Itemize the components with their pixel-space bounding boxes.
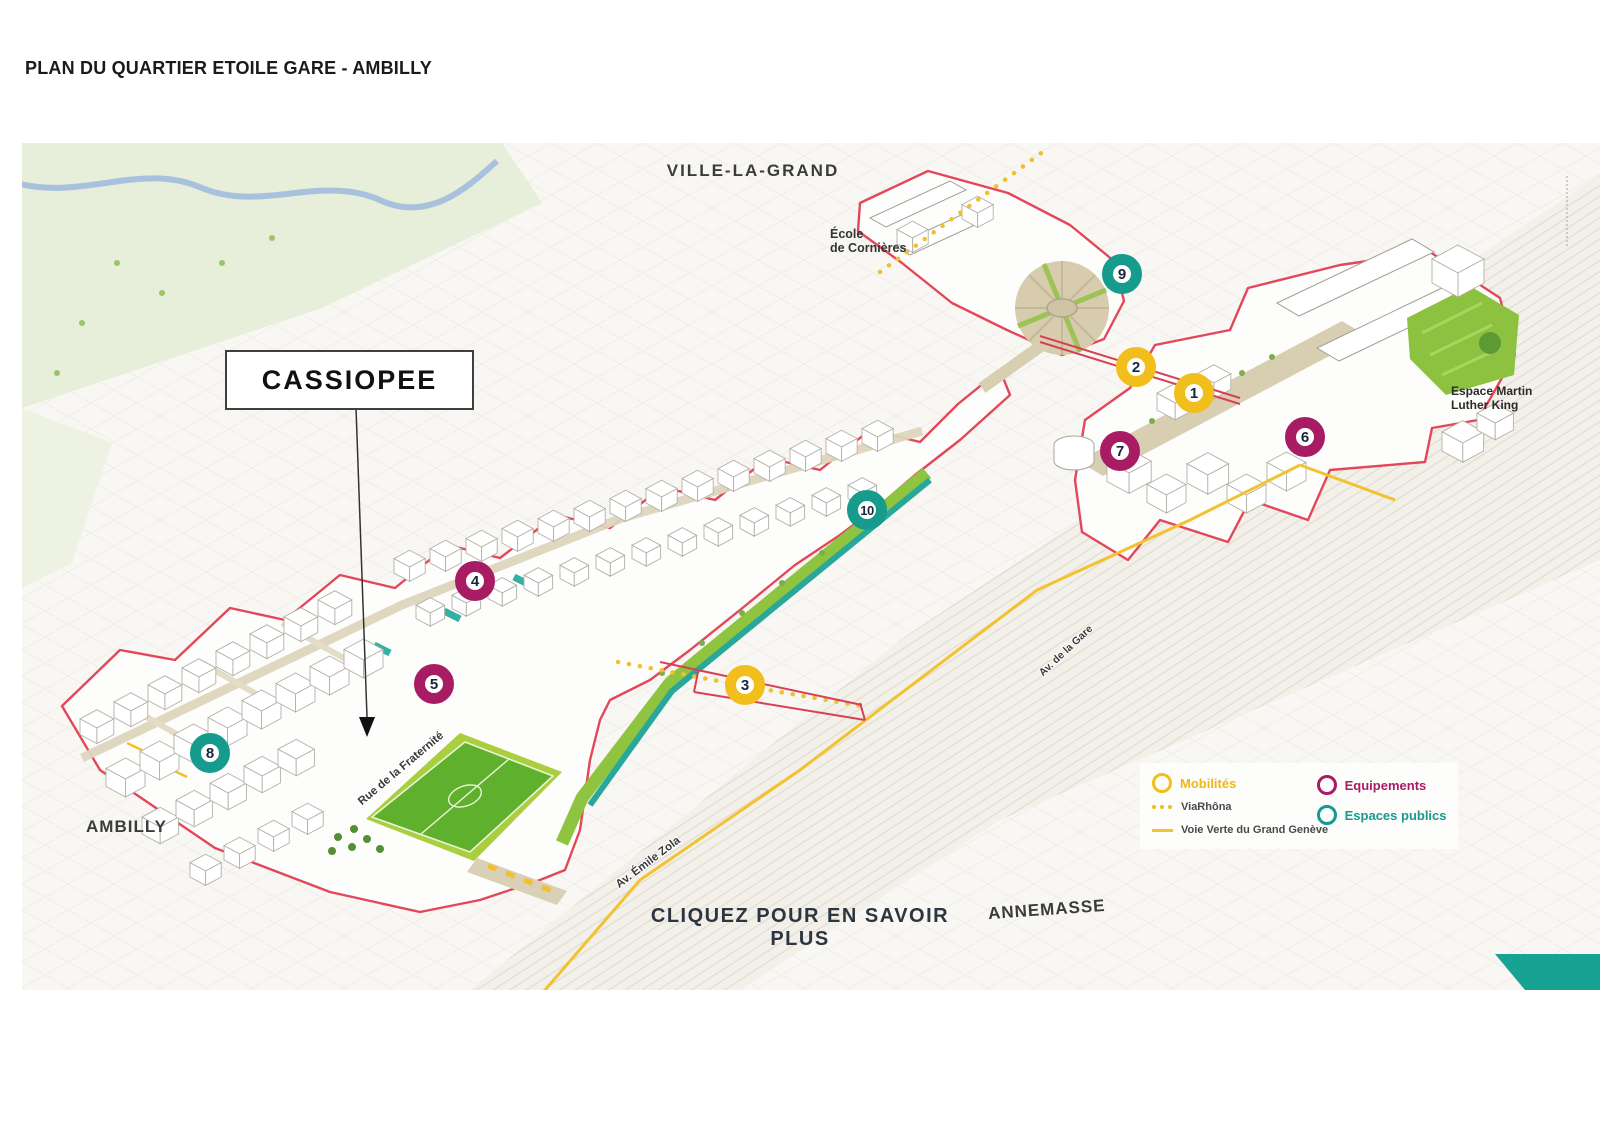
marker-5-equipements[interactable]: 5 <box>414 664 454 704</box>
viarhona-dotted-line-icon <box>1152 805 1173 809</box>
legend-label-equipements: Equipements <box>1345 778 1427 793</box>
legend-item-viarhona: ViaRhôna <box>1152 798 1317 816</box>
legend-item-mobilites: Mobilités <box>1152 773 1317 793</box>
legend-label-mobilites: Mobilités <box>1180 776 1236 791</box>
legend: Mobilités ViaRhôna Voie Verte du Grand G… <box>1140 763 1458 849</box>
district-map: Rue de la Fraternité Av. Émile Zola Av. … <box>22 143 1600 990</box>
map-artwork: Rue de la Fraternité Av. Émile Zola Av. … <box>22 143 1600 990</box>
cta-click-for-more[interactable]: CLIQUEZ POUR EN SAVOIR PLUS <box>630 905 970 951</box>
ecole-line2: de Cornières <box>830 241 906 255</box>
marker-10-espaces-publics[interactable]: 10 <box>847 490 887 530</box>
equipements-ring-icon <box>1317 775 1337 795</box>
espaces-publics-ring-icon <box>1317 805 1337 825</box>
cassiopee-callout: CASSIOPEE <box>225 350 474 410</box>
marker-3-mobilites[interactable]: 3 <box>725 665 765 705</box>
marker-1-mobilites[interactable]: 1 <box>1174 373 1214 413</box>
map-credit-mark <box>1566 176 1568 248</box>
city-label-ville-la-grand: VILLE-LA-GRAND <box>623 161 883 181</box>
city-label-ambilly: AMBILLY <box>86 817 167 837</box>
marker-4-equipements[interactable]: 4 <box>455 561 495 601</box>
legend-item-voie-verte: Voie Verte du Grand Genève <box>1152 821 1317 839</box>
legend-label-viarhona: ViaRhôna <box>1181 801 1232 813</box>
marker-2-mobilites[interactable]: 2 <box>1116 347 1156 387</box>
place-label-espace-mlk: Espace Martin Luther King <box>1451 385 1532 412</box>
marker-7-equipements[interactable]: 7 <box>1100 431 1140 471</box>
ecole-line1: École <box>830 227 906 241</box>
espace-mlk-line1: Espace Martin <box>1451 385 1532 399</box>
legend-item-equipements: Equipements <box>1317 775 1446 795</box>
legend-label-voie-verte: Voie Verte du Grand Genève <box>1181 824 1328 836</box>
place-label-ecole-de-cornieres: École de Cornières <box>830 227 906 255</box>
voie-verte-line-icon <box>1152 829 1173 832</box>
marker-9-espaces-publics[interactable]: 9 <box>1102 254 1142 294</box>
marker-6-equipements[interactable]: 6 <box>1285 417 1325 457</box>
legend-column-right: Equipements Espaces publics <box>1317 773 1446 839</box>
legend-column-left: Mobilités ViaRhôna Voie Verte du Grand G… <box>1152 773 1317 839</box>
marker-8-espaces-publics[interactable]: 8 <box>190 733 230 773</box>
mobilites-ring-icon <box>1152 773 1172 793</box>
page-title: PLAN DU QUARTIER ETOILE GARE - AMBILLY <box>25 58 432 79</box>
espace-mlk-line2: Luther King <box>1451 399 1532 413</box>
legend-label-espaces-publics: Espaces publics <box>1345 808 1447 823</box>
legend-item-espaces-publics: Espaces publics <box>1317 805 1446 825</box>
